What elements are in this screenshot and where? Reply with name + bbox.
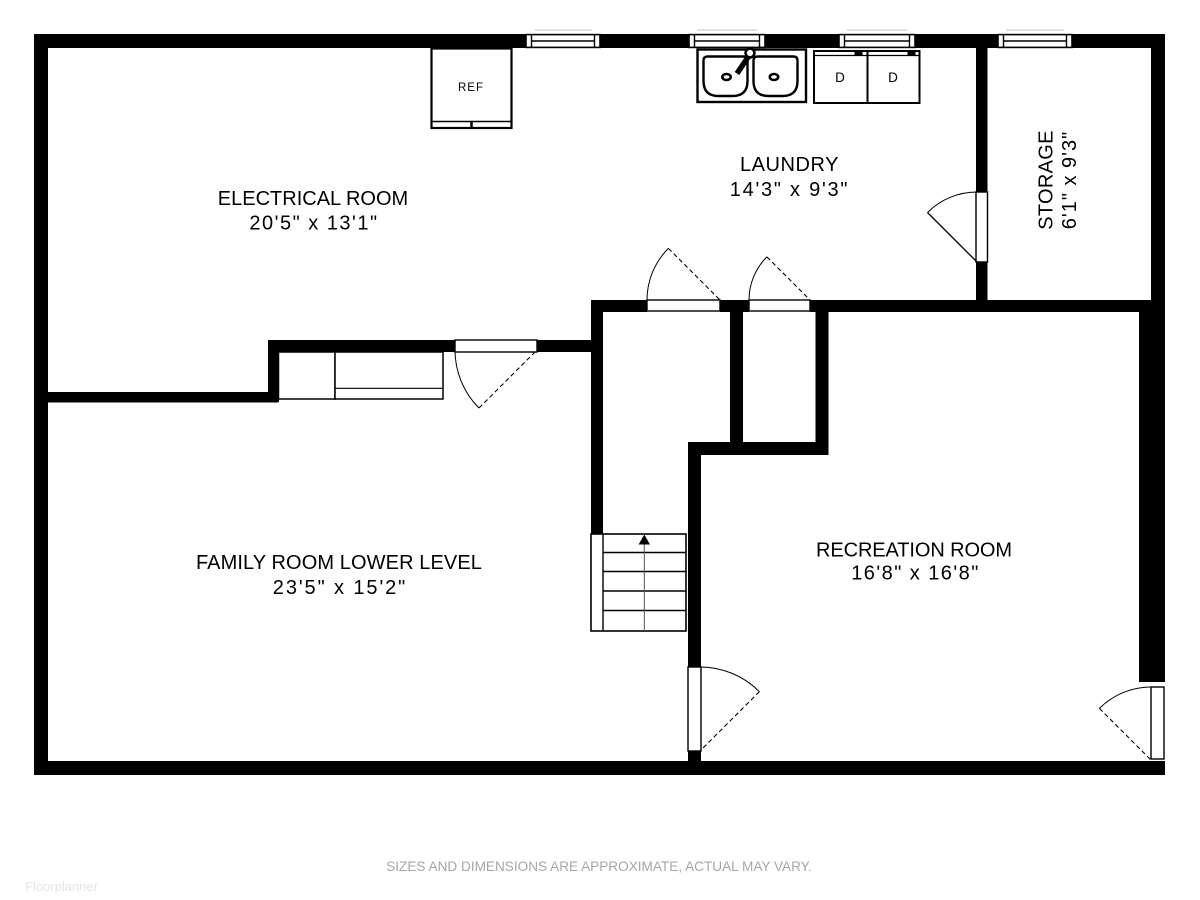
svg-text:LAUNDRY: LAUNDRY xyxy=(740,154,839,176)
svg-text:SIZES AND DIMENSIONS ARE APPRO: SIZES AND DIMENSIONS ARE APPROXIMATE, AC… xyxy=(386,859,812,874)
svg-text:RECREATION ROOM: RECREATION ROOM xyxy=(816,540,1012,562)
svg-text:6'1" x 9'3": 6'1" x 9'3" xyxy=(1059,131,1081,229)
svg-text:23'5" x 15'2": 23'5" x 15'2" xyxy=(273,577,407,599)
svg-text:STORAGE: STORAGE xyxy=(1036,130,1058,230)
svg-text:FAMILY ROOM LOWER LEVEL: FAMILY ROOM LOWER LEVEL xyxy=(196,552,482,574)
svg-text:D: D xyxy=(835,70,845,85)
svg-text:20'5" x 13'1": 20'5" x 13'1" xyxy=(249,213,378,235)
svg-text:D: D xyxy=(888,70,898,85)
svg-text:Floorplanner: Floorplanner xyxy=(25,879,99,894)
svg-text:14'3" x 9'3": 14'3" x 9'3" xyxy=(730,179,850,201)
svg-text:16'8" x 16'8": 16'8" x 16'8" xyxy=(851,563,980,585)
svg-text:ELECTRICAL ROOM: ELECTRICAL ROOM xyxy=(218,188,408,210)
svg-text:REF: REF xyxy=(458,82,484,94)
